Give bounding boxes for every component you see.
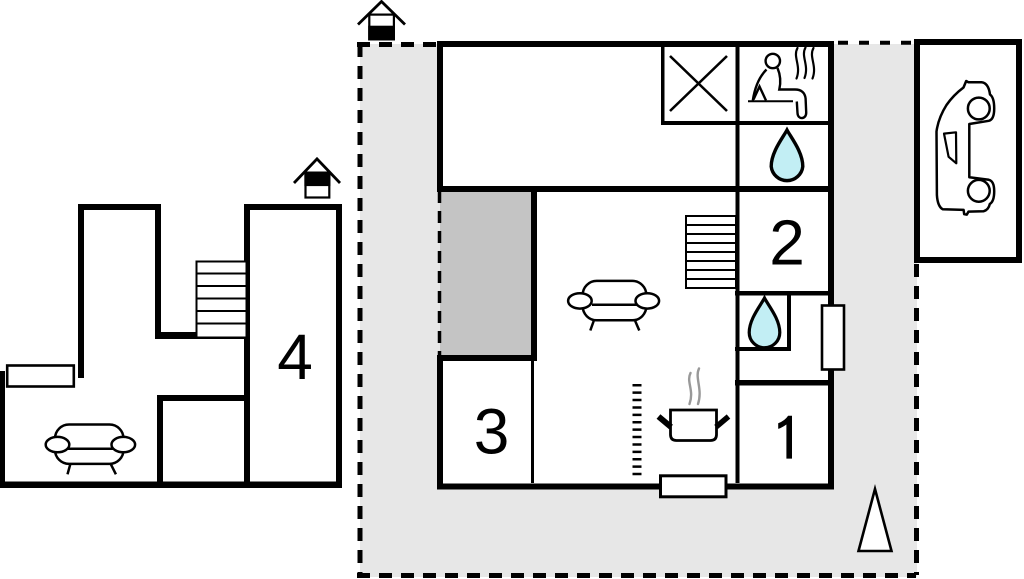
svg-text:4: 4 (277, 321, 313, 393)
svg-text:2: 2 (769, 206, 805, 278)
svg-text:3: 3 (474, 396, 510, 468)
